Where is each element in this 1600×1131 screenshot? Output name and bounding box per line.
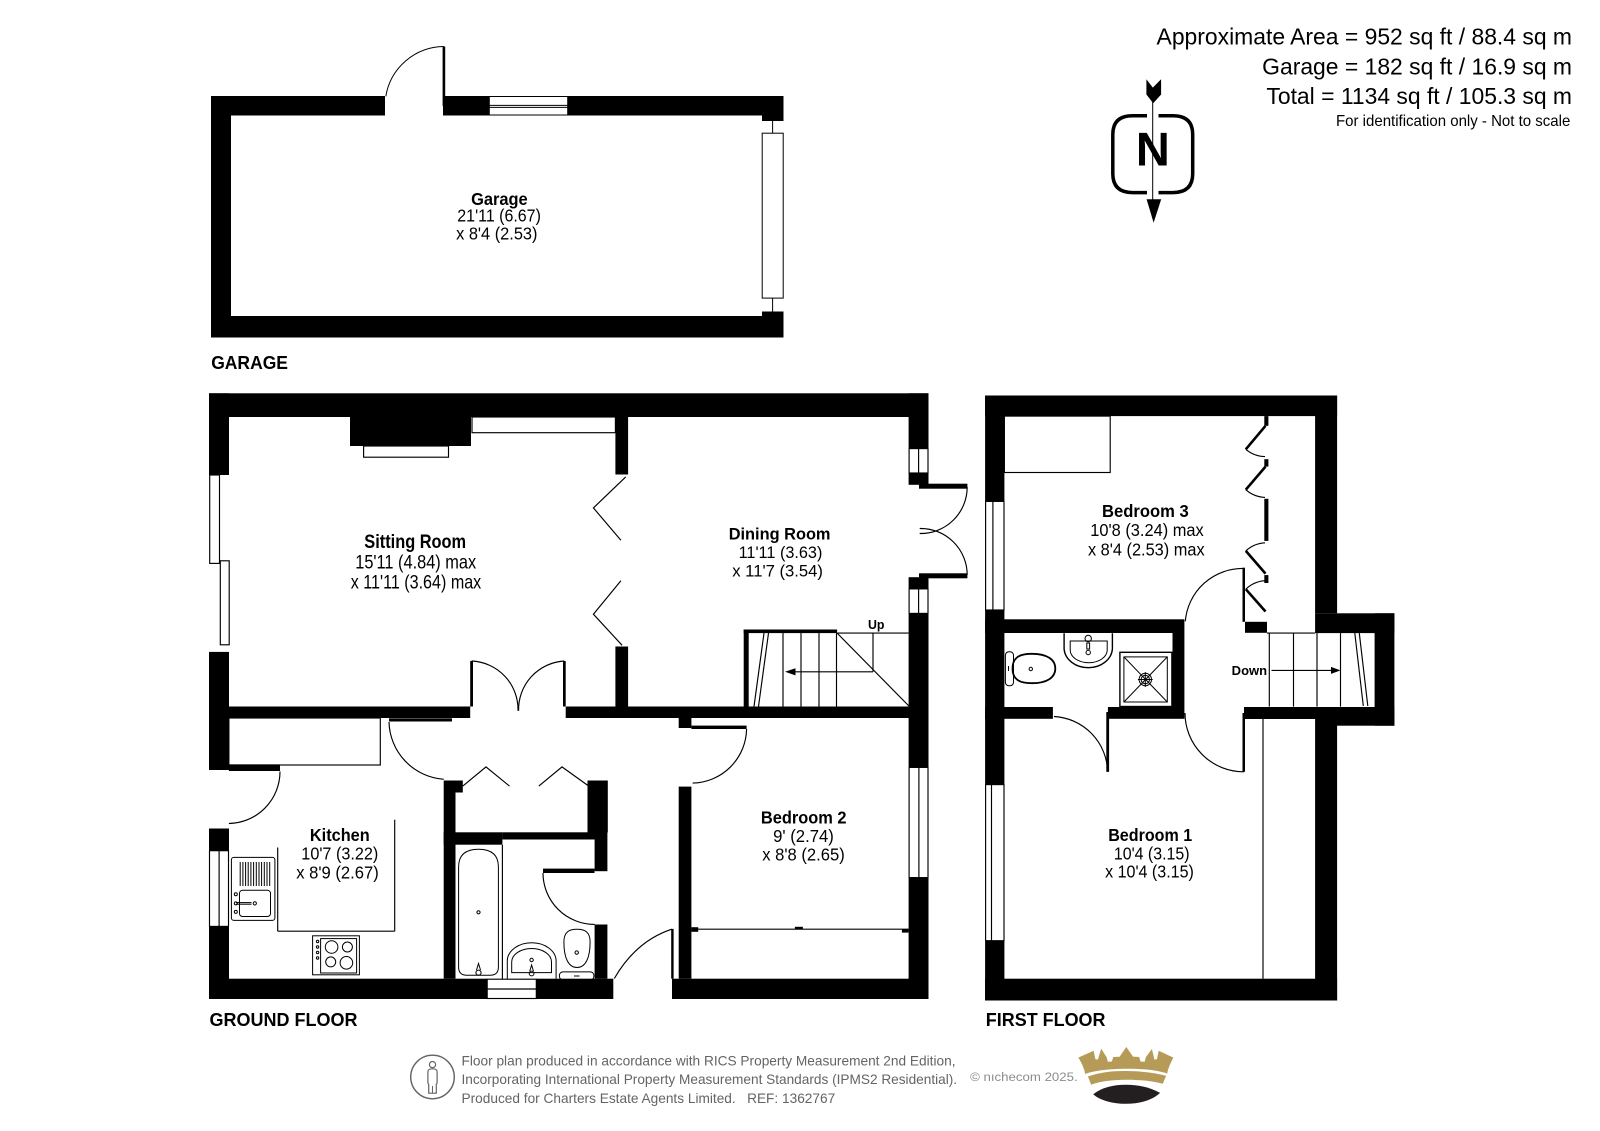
svg-text:© nıchecom 2025.: © nıchecom 2025. xyxy=(970,1070,1078,1084)
svg-text:GARAGE: GARAGE xyxy=(211,353,288,374)
svg-text:FIRST FLOOR: FIRST FLOOR xyxy=(986,1010,1106,1031)
svg-text:x 11'7 (3.54): x 11'7 (3.54) xyxy=(732,562,823,581)
svg-text:Sitting Room: Sitting Room xyxy=(364,532,466,553)
svg-text:x 8'4 (2.53) max: x 8'4 (2.53) max xyxy=(1088,541,1205,560)
svg-text:9' (2.74): 9' (2.74) xyxy=(773,827,834,846)
svg-text:x 8'4 (2.53): x 8'4 (2.53) xyxy=(456,223,537,243)
svg-text:Approximate Area = 952 sq ft /: Approximate Area = 952 sq ft / 88.4 sq m xyxy=(1157,24,1572,50)
svg-text:Bedroom 2: Bedroom 2 xyxy=(761,809,847,828)
svg-text:Bedroom 3: Bedroom 3 xyxy=(1102,502,1189,521)
svg-text:Produced for Charters Estate A: Produced for Charters Estate Agents Limi… xyxy=(462,1091,836,1106)
svg-text:Incorporating International Pr: Incorporating International Property Mea… xyxy=(462,1072,958,1087)
svg-text:GROUND FLOOR: GROUND FLOOR xyxy=(210,1010,358,1031)
svg-text:x 11'11 (3.64) max: x 11'11 (3.64) max xyxy=(351,573,482,594)
svg-text:x 8'9 (2.67): x 8'9 (2.67) xyxy=(296,863,379,882)
svg-text:Kitchen: Kitchen xyxy=(310,826,370,845)
svg-text:10'7 (3.22): 10'7 (3.22) xyxy=(301,845,378,864)
svg-text:Total = 1134 sq ft / 105.3 sq: Total = 1134 sq ft / 105.3 sq m xyxy=(1266,83,1572,109)
svg-text:x 8'8 (2.65): x 8'8 (2.65) xyxy=(762,846,845,865)
svg-text:Bedroom 1: Bedroom 1 xyxy=(1108,826,1192,845)
svg-text:x 10'4 (3.15): x 10'4 (3.15) xyxy=(1105,863,1194,882)
svg-text:15'11 (4.84) max: 15'11 (4.84) max xyxy=(355,552,476,573)
svg-text:Up: Up xyxy=(868,618,885,632)
svg-text:N: N xyxy=(1136,122,1170,175)
svg-text:11'11 (3.63): 11'11 (3.63) xyxy=(739,543,823,562)
svg-text:Garage = 182 sq ft / 16.9 sq m: Garage = 182 sq ft / 16.9 sq m xyxy=(1262,53,1572,79)
svg-text:10'4 (3.15): 10'4 (3.15) xyxy=(1114,844,1190,863)
svg-text:For identification only - Not: For identification only - Not to scale xyxy=(1336,113,1570,130)
svg-text:Floor plan produced in accorda: Floor plan produced in accordance with R… xyxy=(462,1053,956,1068)
svg-text:Down: Down xyxy=(1232,664,1267,678)
svg-text:Dining Room: Dining Room xyxy=(729,525,831,544)
svg-text:10'8 (3.24) max: 10'8 (3.24) max xyxy=(1090,521,1204,540)
